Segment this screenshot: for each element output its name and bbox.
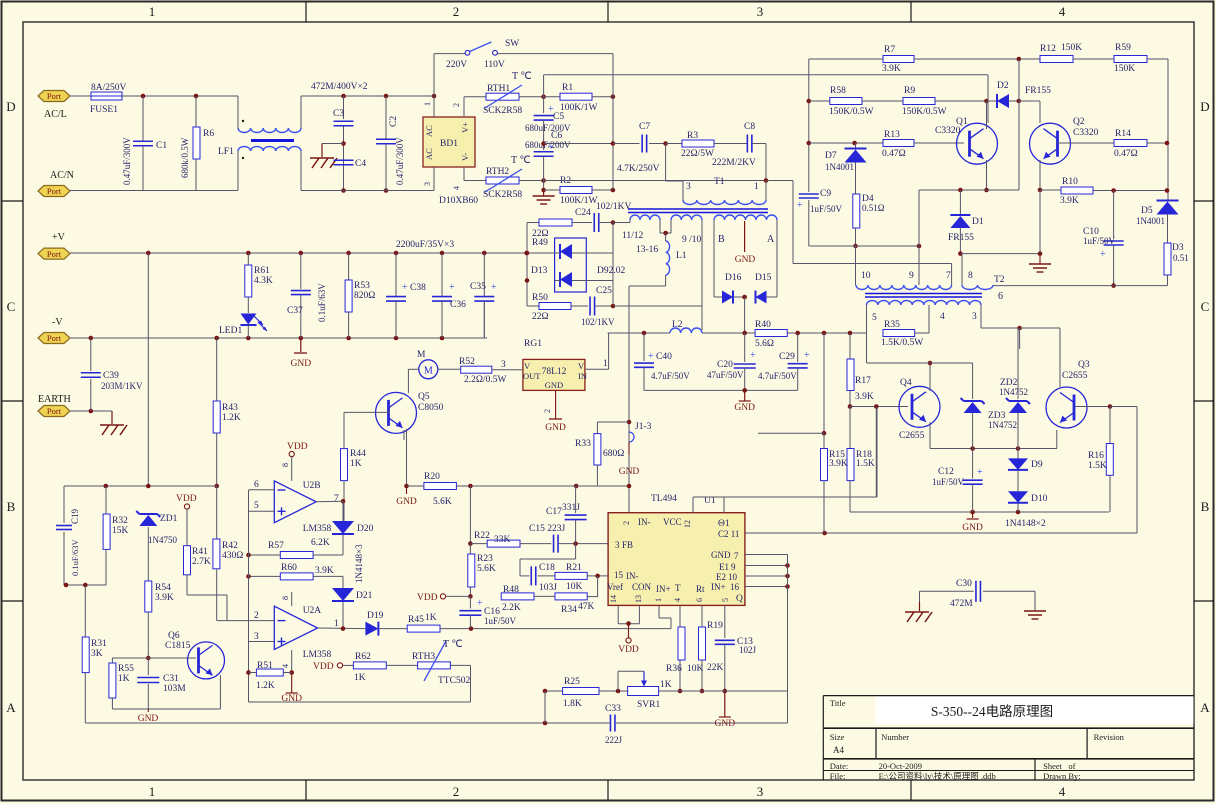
svg-text:L2: L2 — [672, 320, 683, 330]
svg-text:R22: R22 — [474, 531, 490, 541]
svg-text:Port: Port — [47, 186, 62, 196]
svg-text:T: T — [675, 583, 681, 593]
svg-text:RTH3: RTH3 — [412, 652, 435, 662]
svg-text:220V: 220V — [446, 60, 467, 70]
svg-text:C24: C24 — [575, 208, 591, 218]
svg-text:1.2K: 1.2K — [222, 413, 241, 423]
svg-text:VCC: VCC — [663, 517, 682, 527]
svg-text:R61: R61 — [254, 266, 270, 276]
svg-text:C39: C39 — [103, 371, 119, 381]
svg-text:AC/N: AC/N — [50, 170, 74, 181]
svg-text:6: 6 — [998, 291, 1003, 302]
svg-text:VDD: VDD — [176, 494, 197, 504]
svg-text:150K/0.5W: 150K/0.5W — [829, 107, 874, 117]
svg-text:1K: 1K — [118, 674, 130, 684]
svg-text:3K: 3K — [91, 649, 103, 659]
svg-text:R40: R40 — [755, 320, 771, 330]
svg-text:E1: E1 — [719, 562, 729, 572]
svg-text:D: D — [1200, 99, 1209, 114]
svg-text:1K: 1K — [350, 459, 362, 469]
svg-text:Rt: Rt — [696, 584, 705, 594]
svg-text:8: 8 — [281, 596, 290, 600]
svg-text:8: 8 — [281, 463, 290, 467]
svg-text:3: 3 — [501, 360, 506, 370]
svg-text:+: + — [977, 467, 983, 478]
svg-text:2200uF/35V×3: 2200uF/35V×3 — [396, 240, 454, 250]
svg-text:5: 5 — [872, 313, 877, 323]
svg-text:103J: 103J — [539, 583, 557, 593]
svg-text:C9: C9 — [820, 189, 831, 199]
svg-text:E2: E2 — [716, 572, 726, 582]
svg-text:L1: L1 — [676, 251, 687, 261]
svg-text:R50: R50 — [532, 293, 548, 303]
svg-text:0.51: 0.51 — [1173, 253, 1189, 263]
svg-text:GND: GND — [962, 523, 983, 533]
svg-text:C7: C7 — [639, 122, 650, 132]
svg-text:R54: R54 — [155, 583, 171, 593]
svg-text:R10: R10 — [1062, 177, 1078, 187]
svg-text:R58: R58 — [830, 86, 846, 96]
svg-text:FR155: FR155 — [948, 233, 974, 243]
svg-text:C3320: C3320 — [935, 126, 961, 136]
svg-text:C8: C8 — [744, 122, 755, 132]
svg-text:4: 4 — [673, 598, 682, 602]
svg-text:RTH1: RTH1 — [487, 84, 510, 94]
svg-text:R48: R48 — [503, 585, 519, 595]
svg-text:100K/1W: 100K/1W — [560, 196, 598, 206]
svg-text:AC: AC — [424, 125, 434, 137]
svg-text:4.7K/250V: 4.7K/250V — [617, 164, 660, 174]
svg-text:2: 2 — [453, 784, 460, 799]
svg-text:C30: C30 — [956, 579, 972, 589]
svg-text:C: C — [1201, 299, 1210, 314]
svg-text:1K: 1K — [354, 673, 366, 683]
svg-text:ZD1: ZD1 — [160, 514, 178, 524]
svg-text:IN: IN — [578, 371, 587, 381]
svg-text:Q6: Q6 — [168, 631, 180, 641]
svg-text:C20: C20 — [717, 360, 733, 370]
svg-text:3: 3 — [757, 4, 764, 19]
svg-text:D20: D20 — [357, 524, 374, 534]
svg-text:C17: C17 — [546, 507, 562, 517]
svg-text:File:: File: — [830, 771, 846, 781]
svg-text:+: + — [491, 282, 497, 293]
svg-text:1uF/50V: 1uF/50V — [932, 477, 965, 487]
svg-text:5: 5 — [254, 501, 259, 511]
svg-text:47uF/50V: 47uF/50V — [707, 370, 744, 380]
svg-text:15K: 15K — [112, 526, 129, 536]
svg-text:22Ω/5W: 22Ω/5W — [681, 149, 714, 159]
svg-text:R55: R55 — [118, 664, 134, 674]
svg-text:A: A — [767, 234, 775, 245]
svg-text:+: + — [477, 598, 483, 609]
svg-text:D10XB60: D10XB60 — [439, 196, 478, 206]
svg-text:GND: GND — [619, 467, 640, 477]
svg-text:0.51Ω: 0.51Ω — [862, 203, 885, 213]
svg-text:4: 4 — [1059, 784, 1066, 799]
svg-text:J1-3: J1-3 — [635, 422, 652, 432]
svg-text:R12: R12 — [1040, 44, 1056, 54]
svg-text:SCK2R58: SCK2R58 — [483, 106, 522, 116]
svg-text:10: 10 — [861, 271, 871, 281]
svg-text:FUSE1: FUSE1 — [90, 105, 118, 115]
svg-text:U2A: U2A — [303, 606, 322, 616]
svg-text:4: 4 — [1059, 4, 1066, 19]
svg-text:1N4001: 1N4001 — [1136, 216, 1165, 226]
svg-text:B: B — [7, 499, 16, 514]
svg-text:Q: Q — [736, 594, 743, 604]
svg-text:AC: AC — [424, 148, 434, 160]
svg-text:VDD: VDD — [618, 645, 639, 655]
svg-text:4.3K: 4.3K — [254, 276, 273, 286]
svg-text:222M/2KV: 222M/2KV — [712, 158, 756, 168]
svg-text:D15: D15 — [755, 273, 772, 283]
svg-text:16: 16 — [730, 582, 740, 592]
svg-text:10K: 10K — [566, 582, 583, 592]
svg-text:1K: 1K — [425, 613, 437, 623]
svg-text:6.2K: 6.2K — [311, 538, 330, 548]
svg-text:7: 7 — [334, 494, 339, 504]
svg-text:C1: C1 — [156, 141, 167, 151]
svg-text:Q3: Q3 — [1078, 360, 1090, 370]
svg-text:11/12: 11/12 — [622, 231, 644, 241]
svg-text:4: 4 — [452, 186, 461, 190]
svg-text:2: 2 — [543, 409, 552, 413]
svg-text:472M/400V×2: 472M/400V×2 — [311, 82, 368, 92]
svg-text:D3: D3 — [1172, 243, 1184, 253]
svg-text:1: 1 — [334, 619, 339, 629]
svg-text:D2: D2 — [997, 81, 1009, 91]
svg-text:3: 3 — [615, 540, 620, 550]
svg-text:C33: C33 — [605, 704, 621, 714]
svg-text:1N4148×2: 1N4148×2 — [1005, 519, 1046, 529]
svg-text:GND: GND — [291, 359, 312, 369]
svg-text:VDD: VDD — [417, 593, 438, 603]
svg-text:R44: R44 — [350, 449, 366, 459]
svg-text:9 /10: 9 /10 — [682, 235, 702, 245]
svg-text:R45: R45 — [408, 615, 424, 625]
svg-text:C4: C4 — [355, 159, 366, 169]
svg-text:2: 2 — [452, 103, 461, 107]
svg-text:0.47uF/300V: 0.47uF/300V — [122, 137, 132, 185]
svg-text:RG1: RG1 — [524, 339, 542, 349]
svg-text:S-350--24电路原理图: S-350--24电路原理图 — [931, 704, 1053, 719]
svg-text:RTH2: RTH2 — [486, 167, 509, 177]
svg-text:Θ1: Θ1 — [718, 519, 730, 529]
svg-text:1K: 1K — [660, 680, 672, 690]
svg-text:R52: R52 — [459, 357, 475, 367]
svg-text:IN+: IN+ — [711, 582, 726, 592]
svg-text:SW: SW — [505, 39, 519, 49]
svg-text:M: M — [417, 350, 426, 360]
svg-text:331J: 331J — [562, 503, 580, 513]
svg-text:IN-: IN- — [638, 517, 651, 527]
svg-text:3.9K: 3.9K — [1060, 196, 1079, 206]
svg-text:2: 2 — [254, 611, 259, 621]
svg-text:D16: D16 — [725, 273, 742, 283]
svg-text:472M: 472M — [950, 599, 973, 609]
svg-text:3: 3 — [757, 784, 764, 799]
svg-text:D7: D7 — [825, 151, 837, 161]
svg-text:5.6K: 5.6K — [433, 497, 452, 507]
svg-text:GND: GND — [735, 255, 756, 265]
svg-text:0.1uF/63V: 0.1uF/63V — [70, 539, 80, 576]
svg-text:47K: 47K — [578, 602, 595, 612]
svg-text:C35: C35 — [470, 282, 486, 292]
svg-text:VDD: VDD — [313, 662, 334, 672]
svg-text:Port: Port — [47, 91, 62, 101]
svg-text:IN+: IN+ — [656, 584, 671, 594]
svg-text:C29: C29 — [779, 352, 795, 362]
svg-text:C8050: C8050 — [418, 403, 444, 413]
svg-text:R31: R31 — [91, 639, 107, 649]
svg-text:0.47Ω: 0.47Ω — [882, 149, 906, 159]
svg-text:R42: R42 — [222, 541, 238, 551]
svg-text:1: 1 — [603, 359, 608, 369]
svg-text:3: 3 — [254, 632, 259, 642]
svg-text:A4: A4 — [833, 745, 844, 755]
svg-text:R57: R57 — [268, 541, 284, 551]
svg-text:1.8K: 1.8K — [563, 699, 582, 709]
svg-text:Drawn By:: Drawn By: — [1043, 771, 1081, 781]
svg-text:C18: C18 — [539, 563, 555, 573]
svg-text:1uF/50V: 1uF/50V — [810, 204, 843, 214]
svg-text:R3: R3 — [687, 131, 698, 141]
svg-text:R17: R17 — [855, 376, 871, 386]
svg-text:LF1: LF1 — [218, 147, 234, 157]
svg-text:1: 1 — [149, 784, 156, 799]
svg-text:1N4752: 1N4752 — [999, 387, 1028, 397]
svg-text:R33: R33 — [575, 439, 591, 449]
svg-text:TL494: TL494 — [651, 494, 677, 504]
svg-text:3: 3 — [972, 312, 977, 322]
svg-text:R36: R36 — [666, 664, 682, 674]
svg-text:R62: R62 — [355, 652, 371, 662]
svg-text:+: + — [1100, 249, 1106, 260]
svg-text:C: C — [7, 299, 16, 314]
svg-text:78L12: 78L12 — [542, 367, 567, 377]
svg-text:C40: C40 — [656, 352, 672, 362]
svg-text:14: 14 — [609, 595, 618, 603]
svg-text:1N4148×3: 1N4148×3 — [354, 544, 364, 583]
svg-text:V: V — [578, 361, 585, 371]
svg-text:C19: C19 — [70, 508, 80, 524]
svg-text:+: + — [648, 351, 654, 362]
svg-text:SVR1: SVR1 — [637, 700, 660, 710]
svg-text:2: 2 — [453, 4, 460, 19]
svg-text:100K/1W: 100K/1W — [560, 103, 598, 113]
svg-text:Port: Port — [47, 249, 62, 259]
svg-text:T2: T2 — [994, 275, 1005, 285]
svg-text:20-Oct-2009: 20-Oct-2009 — [879, 761, 922, 771]
svg-text:EARTH: EARTH — [38, 394, 71, 405]
svg-text:680uF/200V: 680uF/200V — [525, 123, 571, 133]
svg-text:C1815: C1815 — [165, 641, 191, 651]
svg-text:+: + — [804, 350, 810, 361]
svg-text:10K: 10K — [687, 664, 704, 674]
svg-text:1N4001: 1N4001 — [825, 162, 854, 172]
svg-text:+: + — [797, 200, 803, 211]
svg-text:12: 12 — [683, 520, 692, 528]
svg-text:C25: C25 — [596, 286, 612, 296]
svg-text:R6: R6 — [203, 129, 214, 139]
svg-text:T ℃: T ℃ — [511, 155, 531, 166]
svg-text:D1: D1 — [972, 217, 984, 227]
svg-text:1: 1 — [423, 102, 432, 106]
svg-text:820Ω: 820Ω — [354, 291, 375, 301]
svg-text:33K: 33K — [494, 535, 511, 545]
svg-text:1: 1 — [149, 4, 156, 19]
svg-text:Q4: Q4 — [900, 378, 912, 388]
svg-text:150K: 150K — [1061, 43, 1082, 53]
svg-text:430Ω: 430Ω — [222, 551, 243, 561]
svg-text:M: M — [424, 366, 433, 377]
svg-text:Vref: Vref — [607, 582, 623, 592]
svg-text:R49: R49 — [532, 238, 548, 248]
svg-text:0.47uF/300V: 0.47uF/300V — [395, 137, 405, 185]
svg-text:R51: R51 — [257, 661, 273, 671]
svg-text:1.2K: 1.2K — [256, 681, 275, 691]
svg-text:R23: R23 — [477, 554, 493, 564]
svg-text:102J: 102J — [739, 645, 757, 655]
svg-text:T ℃: T ℃ — [512, 71, 532, 82]
svg-text:C2 11: C2 11 — [718, 529, 739, 539]
svg-text:R43: R43 — [222, 403, 238, 413]
svg-text:13: 13 — [634, 595, 643, 603]
svg-text:22K: 22K — [707, 663, 724, 673]
svg-text:C15 223J: C15 223J — [529, 524, 565, 534]
svg-text:C2: C2 — [389, 116, 399, 127]
svg-text:AC/L: AC/L — [44, 109, 67, 120]
svg-text:R7: R7 — [884, 45, 895, 55]
svg-text:B: B — [718, 234, 725, 245]
svg-text:V+: V+ — [460, 122, 470, 133]
svg-text:R14: R14 — [1115, 129, 1131, 139]
svg-text:4.7uF/50V: 4.7uF/50V — [758, 371, 797, 381]
svg-text:C37: C37 — [287, 306, 303, 316]
svg-text:6: 6 — [254, 480, 259, 490]
svg-text:IN-: IN- — [626, 571, 639, 581]
svg-text:LED1: LED1 — [219, 326, 242, 336]
svg-text:C2655: C2655 — [899, 431, 925, 441]
svg-text:Date:: Date: — [830, 761, 848, 771]
svg-text:+V: +V — [52, 232, 66, 243]
svg-text:R34: R34 — [561, 605, 577, 615]
svg-text:C36: C36 — [450, 300, 466, 310]
svg-text:R13: R13 — [884, 130, 900, 140]
svg-text:103M: 103M — [163, 684, 186, 694]
svg-text:Number: Number — [881, 732, 909, 742]
svg-text:2.7K: 2.7K — [192, 557, 211, 567]
svg-text:U2B: U2B — [303, 481, 321, 491]
svg-text:2: 2 — [622, 521, 631, 525]
svg-text:OUT: OUT — [523, 371, 541, 381]
svg-text:C31: C31 — [163, 674, 179, 684]
svg-text:TTC502: TTC502 — [438, 676, 470, 686]
svg-text:3.9K: 3.9K — [855, 392, 874, 402]
svg-text:GND: GND — [715, 719, 736, 729]
svg-text:BD1: BD1 — [440, 139, 458, 149]
svg-text:R53: R53 — [354, 281, 370, 291]
svg-text:22Ω: 22Ω — [532, 312, 549, 322]
svg-text:C3320: C3320 — [1073, 128, 1099, 138]
svg-text:R9: R9 — [904, 86, 915, 96]
svg-text:3.9K: 3.9K — [315, 566, 334, 576]
svg-text:GND: GND — [545, 423, 566, 433]
svg-text:680k/0.5W: 680k/0.5W — [180, 137, 190, 178]
svg-text:0.1uF/63V: 0.1uF/63V — [317, 283, 327, 322]
svg-text:13-16: 13-16 — [636, 245, 658, 255]
svg-text:LM358: LM358 — [303, 524, 332, 534]
svg-text:C2655: C2655 — [1062, 371, 1088, 381]
svg-text:GND: GND — [396, 497, 417, 507]
svg-text:4: 4 — [940, 312, 945, 322]
svg-text:R25: R25 — [564, 677, 580, 687]
svg-text:5.6Ω: 5.6Ω — [755, 339, 774, 349]
svg-text:R19: R19 — [707, 621, 723, 631]
svg-text:Q2: Q2 — [1073, 117, 1085, 127]
svg-text:2.2K: 2.2K — [502, 603, 521, 613]
svg-text:4: 4 — [281, 664, 290, 668]
svg-text:5.6K: 5.6K — [477, 564, 496, 574]
svg-text:1: 1 — [754, 182, 759, 192]
svg-text:15: 15 — [614, 570, 624, 580]
svg-text:D10: D10 — [1031, 494, 1048, 504]
svg-text:0.47Ω: 0.47Ω — [1114, 149, 1138, 159]
svg-text:680Ω: 680Ω — [603, 449, 624, 459]
svg-text:C38: C38 — [410, 283, 426, 293]
svg-text:R32: R32 — [112, 516, 128, 526]
svg-text:R41: R41 — [192, 547, 208, 557]
svg-text:2.2Ω/0.5W: 2.2Ω/0.5W — [464, 375, 506, 385]
svg-text:D: D — [6, 99, 15, 114]
svg-text:1.5K/0.5W: 1.5K/0.5W — [881, 338, 923, 348]
svg-text:D5: D5 — [1141, 206, 1153, 216]
svg-text:110V: 110V — [484, 60, 505, 70]
svg-text:R35: R35 — [884, 320, 900, 330]
svg-text:GND: GND — [711, 550, 731, 560]
svg-text:+: + — [402, 282, 408, 293]
svg-text:R60: R60 — [281, 563, 297, 573]
svg-text:V: V — [524, 361, 531, 371]
svg-text:R20: R20 — [424, 472, 440, 482]
svg-text:9: 9 — [909, 271, 914, 281]
svg-text:C5: C5 — [553, 112, 564, 122]
svg-text:R16: R16 — [1088, 451, 1104, 461]
svg-text:1N4750: 1N4750 — [148, 535, 177, 545]
svg-text:1uF/50V: 1uF/50V — [1083, 236, 1116, 246]
svg-text:1uF/50V: 1uF/50V — [484, 616, 517, 626]
svg-text:GND: GND — [545, 380, 563, 390]
svg-text:102/1KV: 102/1KV — [581, 317, 615, 327]
svg-text:R59: R59 — [1115, 43, 1131, 53]
svg-text:Port: Port — [47, 406, 62, 416]
svg-text:FB: FB — [622, 540, 633, 550]
svg-text:102/1KV: 102/1KV — [596, 202, 632, 212]
svg-text:C3: C3 — [333, 109, 344, 119]
svg-text:7: 7 — [734, 551, 739, 561]
svg-text:A: A — [6, 700, 16, 715]
svg-text:FR155: FR155 — [1025, 86, 1051, 96]
svg-text:T ℃: T ℃ — [443, 639, 463, 650]
svg-text:E:\公司资料\ly\技术\原理图 .ddb: E:\公司资料\ly\技术\原理图 .ddb — [879, 771, 996, 781]
svg-text:SCK2R58: SCK2R58 — [483, 190, 522, 200]
svg-text:D92.02: D92.02 — [597, 266, 625, 276]
svg-text:1N4752: 1N4752 — [988, 420, 1017, 430]
svg-text:D19: D19 — [367, 611, 384, 621]
svg-text:D13: D13 — [531, 266, 548, 276]
svg-text:R1: R1 — [562, 83, 573, 93]
